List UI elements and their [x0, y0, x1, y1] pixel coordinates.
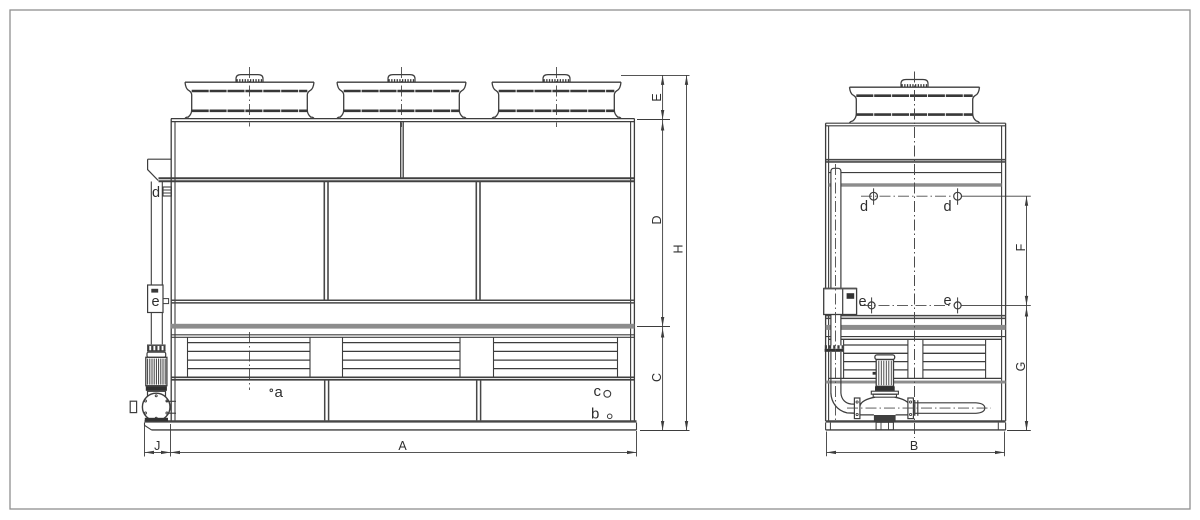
- svg-text:e: e: [944, 293, 952, 309]
- svg-text:H: H: [671, 244, 685, 253]
- svg-text:a: a: [275, 384, 284, 401]
- svg-text:e: e: [152, 294, 160, 310]
- svg-text:C: C: [650, 373, 664, 382]
- svg-text:B: B: [910, 439, 918, 453]
- svg-text:F: F: [1014, 243, 1028, 251]
- svg-text:G: G: [1014, 362, 1028, 372]
- svg-text:D: D: [650, 215, 664, 224]
- svg-text:A: A: [398, 439, 407, 453]
- svg-text:d: d: [152, 185, 160, 201]
- svg-text:c: c: [594, 383, 602, 400]
- svg-text:J: J: [154, 439, 160, 453]
- svg-text:d: d: [944, 199, 952, 215]
- svg-text:E: E: [650, 93, 664, 101]
- svg-text:e: e: [859, 294, 867, 310]
- svg-text:b: b: [591, 406, 599, 423]
- svg-text:d: d: [860, 199, 868, 215]
